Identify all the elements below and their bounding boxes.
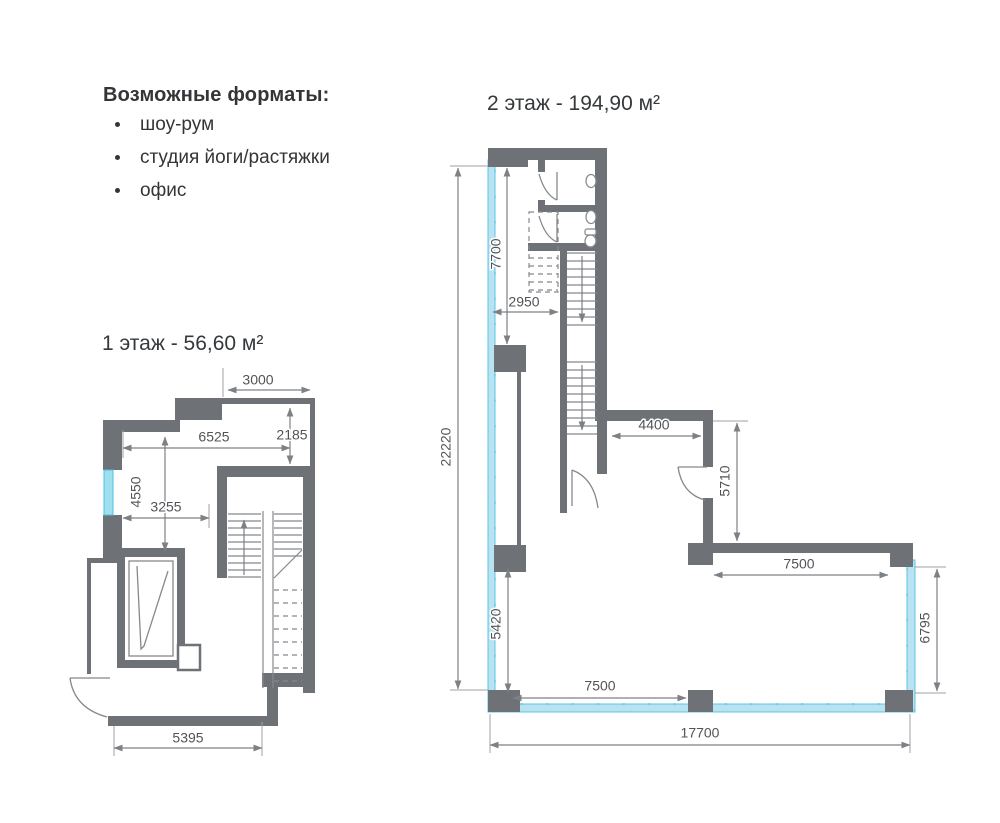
glazing-right <box>907 560 915 710</box>
dim-7700: 7700 <box>488 238 504 269</box>
dim-7500-bottom: 7500 <box>584 678 615 694</box>
door-swing-arc <box>70 678 107 717</box>
floor2-glazing <box>488 160 915 712</box>
toilet-icon <box>585 235 596 247</box>
plans-canvas: 3000 6525 2185 4550 3255 5395 <box>0 0 1000 823</box>
dim-5420: 5420 <box>488 608 504 639</box>
stairs-dashed-outline <box>529 212 558 292</box>
dim-5710: 5710 <box>717 465 733 496</box>
floor1-window-glazing <box>104 470 113 515</box>
dim-4550: 4550 <box>128 476 144 507</box>
floor1-stairs <box>228 511 302 688</box>
door-swing-arc <box>678 467 705 500</box>
dim-2950: 2950 <box>508 294 539 310</box>
stair-break-line <box>274 550 302 578</box>
dim-2185: 2185 <box>276 427 307 443</box>
floor2-plan: 22220 7700 2950 4400 5710 7500 6795 5420… <box>438 148 946 753</box>
dim-3000: 3000 <box>242 372 273 388</box>
dim-6795: 6795 <box>917 612 933 643</box>
dim-4400: 4400 <box>638 417 669 433</box>
floor1-plan: 3000 6525 2185 4550 3255 5395 <box>70 368 315 756</box>
dim-3255: 3255 <box>150 499 181 515</box>
floor1-shaft-box <box>178 645 200 670</box>
door-swing-arc <box>539 216 557 242</box>
sink-icon <box>586 211 596 224</box>
floor1-entrance-door <box>70 678 110 717</box>
floor2-walls <box>488 148 913 712</box>
toilet-icon <box>585 229 596 235</box>
dim-7500-top: 7500 <box>783 556 814 572</box>
sink-icon <box>586 175 596 188</box>
dim-5395: 5395 <box>172 730 203 746</box>
floor1-elevator <box>117 548 200 670</box>
door-swing-arc <box>539 174 557 200</box>
dim-22220: 22220 <box>438 427 454 466</box>
dim-6525: 6525 <box>198 429 229 445</box>
floorplan-page: { "header": { "title": "Возможные формат… <box>0 0 1000 823</box>
dim-17700: 17700 <box>681 725 720 741</box>
floor2-dimensions: 22220 7700 2950 4400 5710 7500 6795 5420… <box>438 166 946 753</box>
door-swing-arc <box>572 470 598 508</box>
